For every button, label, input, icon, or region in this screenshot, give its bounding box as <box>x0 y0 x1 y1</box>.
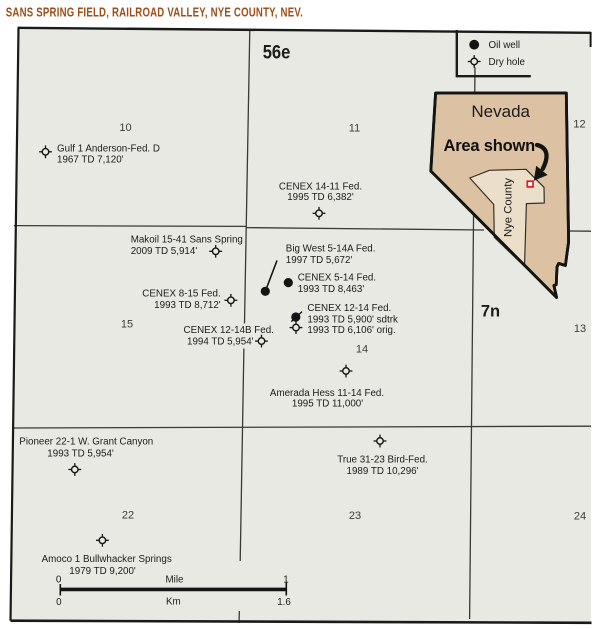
svg-text:13: 13 <box>574 323 586 335</box>
svg-text:11: 11 <box>349 123 360 135</box>
svg-text:Nye County: Nye County <box>503 178 515 237</box>
svg-text:Amoco 1 Bullwhacker Springs: Amoco 1 Bullwhacker Springs <box>42 554 172 565</box>
svg-text:24: 24 <box>574 511 586 523</box>
svg-text:1993 TD 6,106' orig.: 1993 TD 6,106' orig. <box>307 325 395 336</box>
svg-text:Nevada: Nevada <box>471 102 530 121</box>
svg-text:23: 23 <box>349 510 361 522</box>
svg-text:Dry hole: Dry hole <box>489 57 526 68</box>
svg-text:True 31-23 Bird-Fed.: True 31-23 Bird-Fed. <box>337 455 428 466</box>
svg-text:Gulf 1 Anderson-Fed. D: Gulf 1 Anderson-Fed. D <box>57 144 160 155</box>
svg-text:2009 TD 5,914': 2009 TD 5,914' <box>131 246 198 257</box>
svg-text:CENEX 8-15 Fed.: CENEX 8-15 Fed. <box>142 289 220 300</box>
svg-text:Mile: Mile <box>166 575 185 586</box>
svg-text:Oil well: Oil well <box>489 40 521 51</box>
svg-text:1995 TD 6,382': 1995 TD 6,382' <box>287 192 354 203</box>
svg-text:CENEX 5-14 Fed.: CENEX 5-14 Fed. <box>298 273 376 284</box>
svg-text:1967 TD 7,120': 1967 TD 7,120' <box>57 155 124 166</box>
svg-text:1993 TD 8,463': 1993 TD 8,463' <box>298 284 365 295</box>
svg-text:SANS SPRING FIELD, RAILROAD VA: SANS SPRING FIELD, RAILROAD VALLEY, NYE … <box>6 6 303 20</box>
svg-text:1997 TD 5,672': 1997 TD 5,672' <box>286 255 353 266</box>
svg-text:Km: Km <box>166 597 181 608</box>
svg-text:1.6: 1.6 <box>277 597 291 608</box>
svg-text:1989 TD 10,296': 1989 TD 10,296' <box>347 466 419 477</box>
svg-text:Big West 5-14A Fed.: Big West 5-14A Fed. <box>286 244 376 255</box>
svg-text:0: 0 <box>56 597 62 608</box>
svg-text:56e: 56e <box>263 41 291 63</box>
svg-text:10: 10 <box>119 122 131 134</box>
svg-text:CENEX 12-14 Fed.: CENEX 12-14 Fed. <box>307 303 391 314</box>
svg-text:14: 14 <box>356 344 368 356</box>
svg-text:1993 TD 5,954': 1993 TD 5,954' <box>47 449 114 460</box>
svg-text:0: 0 <box>56 575 62 586</box>
svg-text:Pioneer 22-1 W. Grant Canyon: Pioneer 22-1 W. Grant Canyon <box>19 437 153 448</box>
svg-text:15: 15 <box>121 319 133 331</box>
svg-text:1994 TD 5,954': 1994 TD 5,954' <box>187 337 254 348</box>
svg-text:12: 12 <box>573 119 585 131</box>
svg-text:1993 TD 8,712': 1993 TD 8,712' <box>154 300 221 311</box>
svg-text:22: 22 <box>122 510 134 522</box>
svg-text:1993 TD 5,900' sdtrk: 1993 TD 5,900' sdtrk <box>307 314 398 325</box>
svg-text:CENEX 14-11 Fed.: CENEX 14-11 Fed. <box>279 182 362 193</box>
svg-text:CENEX 12-14B Fed.: CENEX 12-14B Fed. <box>184 325 274 336</box>
svg-text:Amerada Hess 11-14 Fed.: Amerada Hess 11-14 Fed. <box>270 388 384 399</box>
svg-text:Makoil 15-41 Sans Spring: Makoil 15-41 Sans Spring <box>131 235 243 246</box>
svg-text:7n: 7n <box>481 303 500 321</box>
svg-text:1995 TD 11,000': 1995 TD 11,000' <box>292 399 363 410</box>
svg-text:Area shown: Area shown <box>444 137 536 155</box>
svg-text:1979 TD 9,200': 1979 TD 9,200' <box>69 566 136 577</box>
